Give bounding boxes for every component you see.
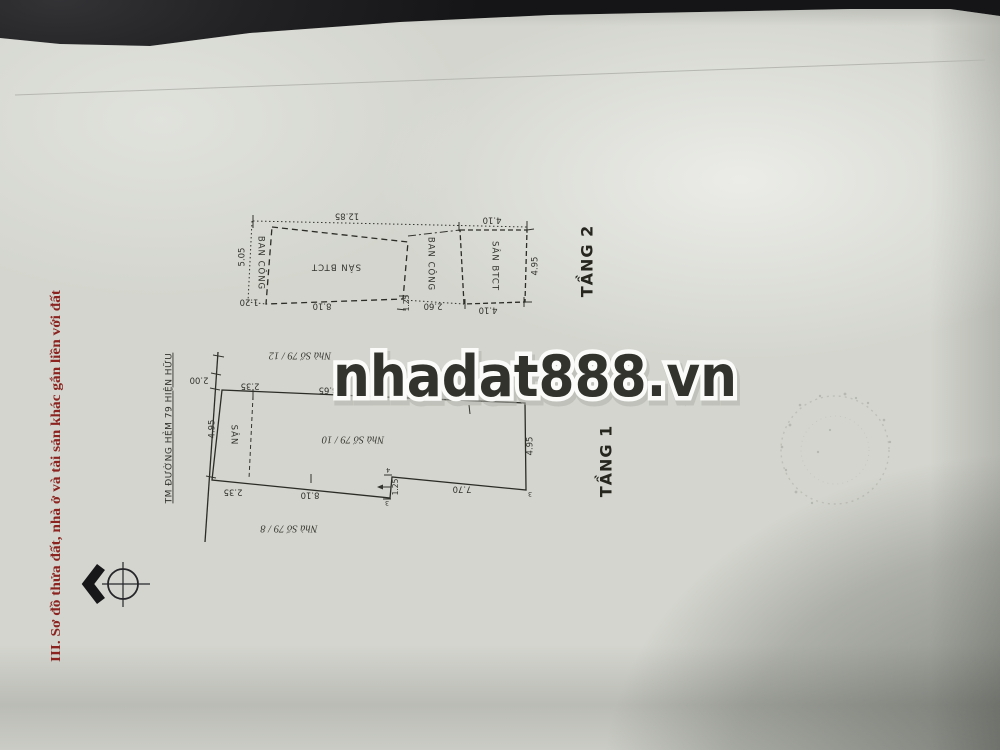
- floor2-dim-right: 4.95: [531, 257, 541, 276]
- floor1-dim-notch: 1.25: [391, 478, 400, 495]
- section-heading: III. Sơ đồ thửa đất, nhà ở và tài sản kh…: [49, 290, 64, 662]
- north-symbol: [88, 562, 150, 607]
- floor2-terrace-right-label: SÂN BTCT: [490, 241, 502, 291]
- point-marker: 3: [385, 499, 389, 507]
- north-arrow-icon: [88, 567, 101, 601]
- stamp-inner-ring: [801, 416, 869, 484]
- floor1-dim-yard-bottom: 2.35: [224, 487, 243, 497]
- floor2-dim-balcony-bottom: 2.60: [424, 301, 443, 311]
- yard-label: SÂN: [229, 425, 241, 446]
- stamp-specks: [781, 393, 892, 505]
- faded-stamp: [781, 393, 892, 505]
- floor2-plan: 12.85 4.10 5.05 BAN CÔNG SÂN BTCT BAN CÔ…: [238, 211, 597, 315]
- paper-crease: [15, 60, 985, 95]
- house-label: Nhà Số 79 / 10: [321, 434, 385, 445]
- floor2-title: TẦNG 2: [576, 225, 597, 298]
- floor1-dim-bottom-right: 7.70: [453, 484, 472, 494]
- floor2-balcony-mid-label: BAN CÔNG: [426, 237, 438, 291]
- neighbor-top-label: Nhà Số 79 / 12: [268, 350, 332, 361]
- floor2-dim-top-right: 4.10: [483, 215, 502, 225]
- floor2-dim-top: 12.85: [335, 211, 359, 221]
- floor1-dim-right: 4.95: [526, 437, 536, 456]
- floor2-main-room-label: SÂN BTCT: [311, 262, 361, 274]
- yard-divider: [249, 396, 253, 479]
- neighbor-bottom-label: Nhà Số 79 / 8: [260, 523, 319, 534]
- floor2-dim-bottom: 8.10: [313, 301, 332, 311]
- floor2-dim-bottom-left: 1.20: [240, 297, 259, 307]
- watermark: nhadat888.vn nhadat888.vn: [333, 344, 739, 414]
- floor1-dim-yard-top: 2.35: [241, 381, 260, 391]
- stamp-outer-ring: [781, 396, 889, 504]
- alley-ticks: [206, 355, 224, 478]
- alley-label: TM ĐƯỜNG HẺM 79 HIỆN HỮU: [163, 353, 175, 505]
- balcony-mid-top: [408, 230, 460, 236]
- floor2-dim-notch: 1.25: [402, 294, 411, 311]
- floor1-title: TẦNG 1: [595, 425, 616, 498]
- floor2-balcony-left-label: BAN CÔNG: [256, 236, 268, 290]
- watermark-text: nhadat888.vn: [333, 344, 737, 410]
- point-marker: 3: [528, 490, 532, 498]
- notch-arrowhead: [377, 485, 383, 490]
- floor2-dim-bottom-right: 4.10: [479, 305, 498, 315]
- cadastral-drawing: 12.85 4.10 5.05 BAN CÔNG SÂN BTCT BAN CÔ…: [0, 0, 1000, 750]
- floor1-dim-yard-left: 4.95: [208, 420, 218, 439]
- point-marker: 4: [386, 466, 390, 474]
- photographed-document: 12.85 4.10 5.05 BAN CÔNG SÂN BTCT BAN CÔ…: [0, 0, 1000, 750]
- floor1-dim-alley-frontage: 2.00: [190, 375, 209, 385]
- floor2-dim-left: 5.05: [238, 248, 248, 267]
- floor1-dim-bottom: 8.10: [301, 490, 320, 500]
